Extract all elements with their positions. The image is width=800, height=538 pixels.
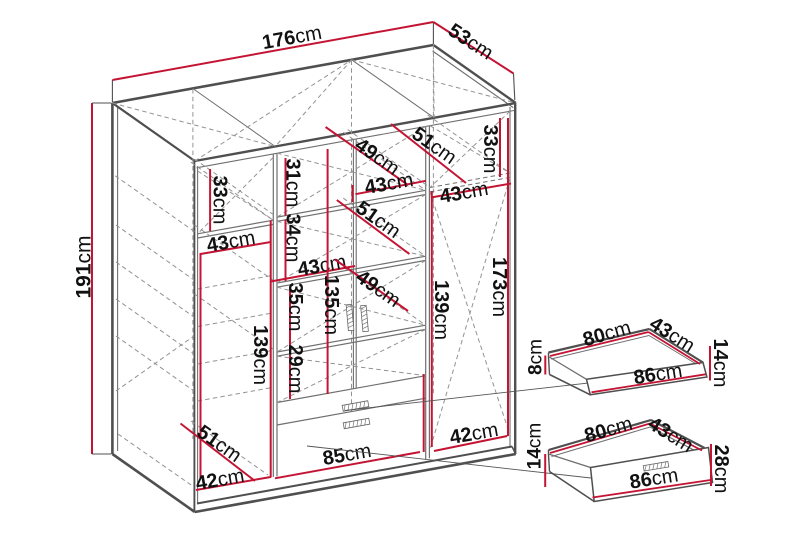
svg-text:139cm: 139cm (430, 280, 452, 340)
svg-text:34cm: 34cm (282, 214, 304, 263)
svg-text:33cm: 33cm (479, 125, 501, 174)
svg-text:139cm: 139cm (249, 325, 271, 385)
svg-text:8cm: 8cm (525, 339, 546, 375)
svg-text:14cm: 14cm (524, 423, 545, 469)
svg-text:14cm: 14cm (709, 339, 731, 388)
svg-text:173cm: 173cm (488, 257, 510, 317)
svg-text:191cm: 191cm (72, 235, 95, 298)
svg-text:33cm: 33cm (209, 176, 231, 225)
svg-text:35cm: 35cm (284, 283, 306, 332)
svg-text:135cm: 135cm (320, 275, 342, 335)
svg-text:28cm: 28cm (710, 445, 732, 494)
svg-text:31cm: 31cm (282, 159, 304, 208)
svg-text:29cm: 29cm (284, 345, 306, 394)
